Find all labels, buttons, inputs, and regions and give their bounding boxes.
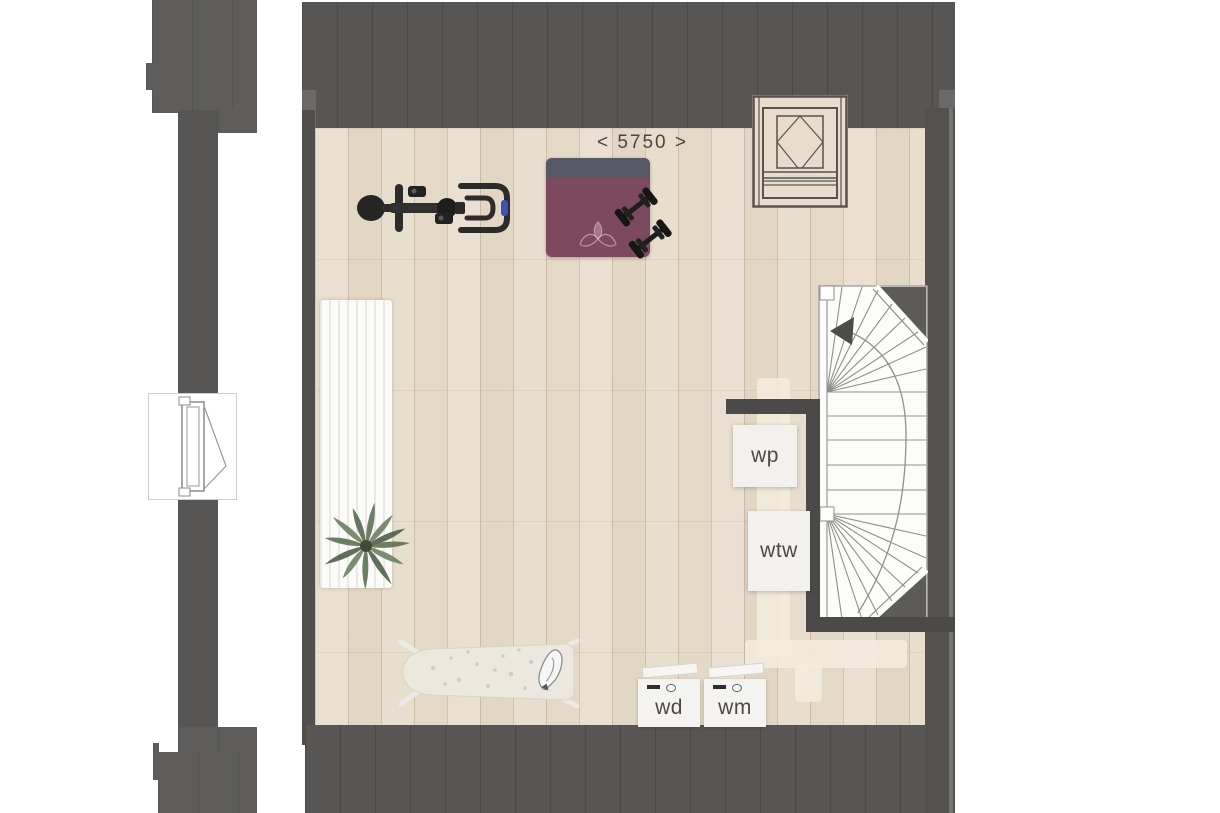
dimension-label: < 5750 > xyxy=(560,130,725,156)
room-wall-right xyxy=(925,108,955,813)
heat-recovery-label: wtw xyxy=(760,539,798,563)
left-roof-block-bottom-step xyxy=(158,752,257,813)
washer-control-bar xyxy=(713,685,726,689)
tilt-window-icon xyxy=(149,394,236,499)
staircase xyxy=(818,285,928,621)
wall-edge-highlight xyxy=(949,108,953,813)
roof-band-bottom xyxy=(305,725,955,813)
interior-wall-stair-bottom xyxy=(806,617,955,632)
dumbbells-icon xyxy=(610,172,690,272)
ironing-board-icon xyxy=(393,638,593,713)
plant-icon xyxy=(316,488,416,604)
room-wall-left xyxy=(302,110,315,745)
heat-recovery-unit: wtw xyxy=(748,511,810,591)
duct-stub xyxy=(795,662,822,702)
washer-label: wm xyxy=(718,696,752,720)
heat-pump-unit: wp xyxy=(733,425,797,487)
dryer-label: wd xyxy=(655,696,683,720)
duct-horizontal xyxy=(745,640,907,668)
washer-control-dial xyxy=(732,684,742,692)
stair-newel-top xyxy=(820,286,834,300)
left-roof-block-top-step xyxy=(218,108,257,133)
exercise-bike-icon xyxy=(355,172,515,244)
washer: wm xyxy=(704,679,766,727)
left-wall-window-recess xyxy=(148,393,237,500)
plant xyxy=(316,488,416,604)
heat-pump-label: wp xyxy=(751,444,779,468)
roof-window-icon xyxy=(752,95,848,208)
dryer-control-dial xyxy=(666,684,676,692)
staircase-icon xyxy=(818,285,928,621)
stair-newel-mid xyxy=(820,507,834,521)
dryer-control-bar xyxy=(647,685,660,689)
dumbbells xyxy=(610,172,690,272)
left-roof-notch-bottom xyxy=(153,743,159,780)
floor-plan-canvas: < 5750 > xyxy=(0,0,1220,813)
left-roof-notch-top xyxy=(146,63,153,90)
dryer: wd xyxy=(638,679,700,727)
ironing-board xyxy=(393,638,593,713)
roof-window xyxy=(752,95,848,208)
left-roof-block-top xyxy=(152,0,257,113)
exercise-bike xyxy=(355,172,515,244)
roof-band-top xyxy=(302,2,955,130)
